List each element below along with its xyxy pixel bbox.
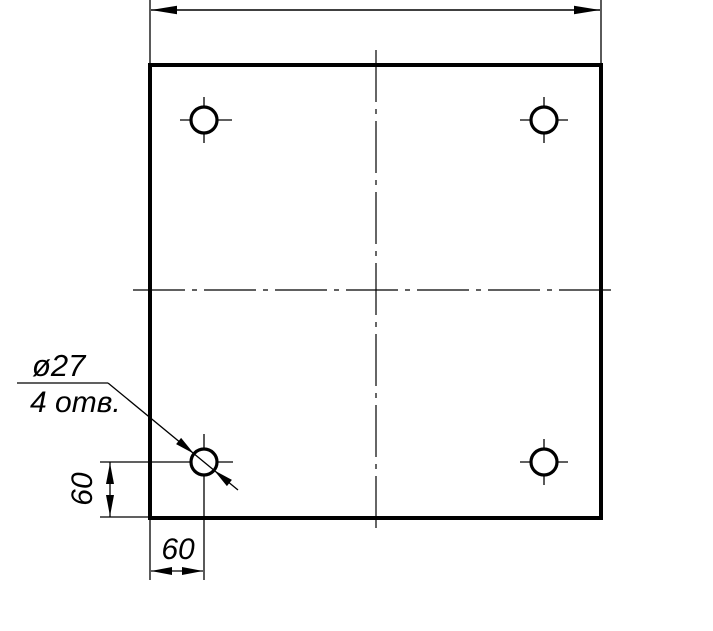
vertical-offset-dimension: 60 xyxy=(66,462,150,517)
arrowhead-right-icon xyxy=(574,6,600,14)
hole-diameter-label: ø27 xyxy=(32,348,87,383)
hole-circle xyxy=(191,107,217,133)
plate-drawing: ø27 4 отв. 60 60 xyxy=(0,0,713,631)
arrowhead-right-icon xyxy=(182,567,203,575)
arrowhead-up-icon xyxy=(106,463,114,484)
arrowhead-down-icon xyxy=(106,495,114,516)
horizontal-offset-value: 60 xyxy=(161,533,195,566)
hole-count-label: 4 отв. xyxy=(30,386,121,419)
horizontal-offset-dimension: 60 xyxy=(150,520,203,580)
hole-circle xyxy=(531,107,557,133)
hole-circle xyxy=(531,449,557,475)
arrowhead-left-icon xyxy=(151,567,172,575)
drawing-canvas: ø27 4 отв. 60 60 xyxy=(0,0,713,631)
vertical-offset-value: 60 xyxy=(66,472,99,506)
arrowhead-left-icon xyxy=(151,6,177,14)
